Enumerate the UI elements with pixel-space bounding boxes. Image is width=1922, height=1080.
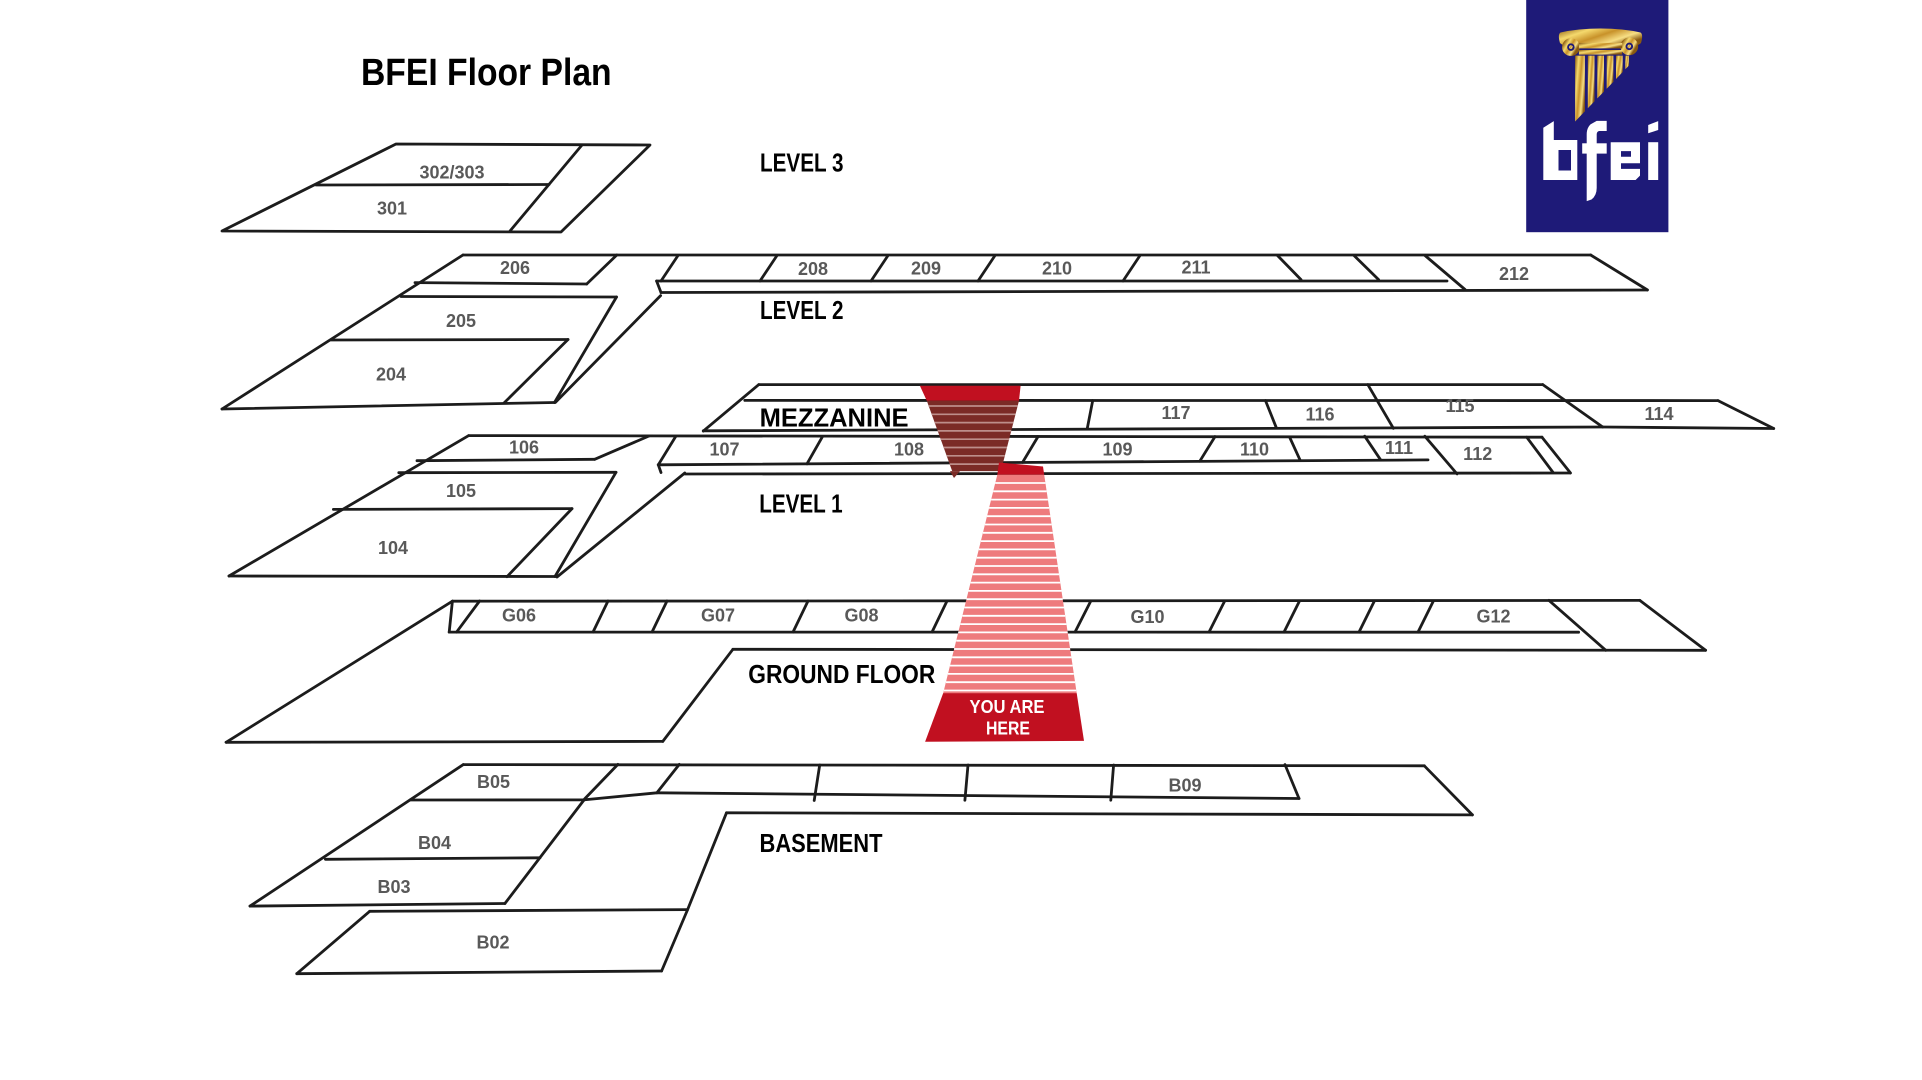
svg-text:109: 109 [1102, 440, 1132, 460]
svg-text:117: 117 [1161, 403, 1190, 423]
svg-text:BFEI Floor Plan: BFEI Floor Plan [361, 52, 612, 94]
svg-text:209: 209 [911, 259, 941, 279]
svg-text:204: 204 [376, 365, 406, 385]
svg-text:G10: G10 [1130, 607, 1164, 627]
svg-text:206: 206 [500, 258, 530, 278]
svg-text:211: 211 [1181, 257, 1210, 277]
svg-text:G06: G06 [502, 606, 536, 626]
svg-text:LEVEL 2: LEVEL 2 [760, 295, 844, 325]
svg-text:104: 104 [378, 538, 408, 558]
svg-text:208: 208 [798, 259, 828, 279]
svg-text:115: 115 [1445, 396, 1474, 416]
svg-text:B04: B04 [418, 833, 451, 853]
svg-text:G12: G12 [1476, 607, 1510, 627]
svg-text:YOU ARE: YOU ARE [970, 697, 1045, 717]
svg-text:116: 116 [1305, 405, 1334, 425]
svg-text:LEVEL 3: LEVEL 3 [760, 148, 844, 178]
svg-text:110: 110 [1240, 440, 1269, 460]
svg-text:B02: B02 [476, 933, 509, 953]
svg-text:B05: B05 [477, 772, 510, 792]
svg-text:106: 106 [509, 438, 539, 458]
svg-text:B09: B09 [1168, 776, 1201, 796]
svg-text:114: 114 [1644, 404, 1673, 424]
svg-text:MEZZANINE: MEZZANINE [760, 402, 909, 432]
svg-text:302/303: 302/303 [419, 162, 484, 182]
svg-text:111: 111 [1385, 438, 1413, 458]
svg-text:205: 205 [446, 311, 476, 331]
svg-text:LEVEL 1: LEVEL 1 [759, 488, 843, 518]
svg-text:BASEMENT: BASEMENT [760, 828, 883, 858]
svg-text:GROUND FLOOR: GROUND FLOOR [748, 659, 935, 689]
svg-text:G08: G08 [844, 606, 878, 626]
svg-text:G07: G07 [701, 606, 735, 626]
svg-text:108: 108 [894, 440, 924, 460]
svg-text:210: 210 [1042, 259, 1072, 279]
svg-text:112: 112 [1463, 444, 1492, 464]
svg-text:301: 301 [377, 199, 407, 219]
svg-text:212: 212 [1499, 264, 1529, 284]
svg-text:B03: B03 [377, 877, 410, 897]
svg-text:107: 107 [709, 440, 739, 460]
svg-text:105: 105 [446, 481, 476, 501]
svg-text:HERE: HERE [986, 719, 1030, 739]
